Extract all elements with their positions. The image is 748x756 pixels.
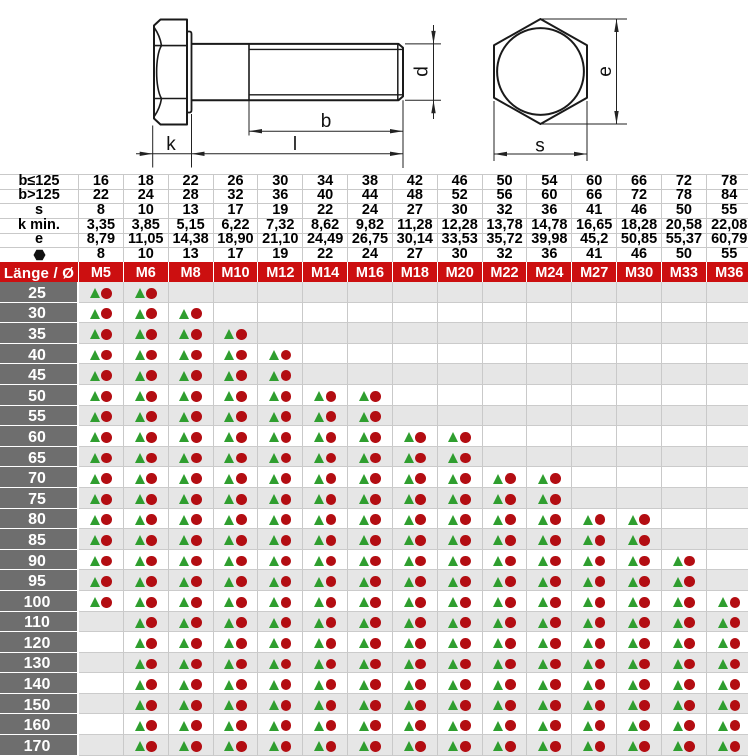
svg-text:e: e bbox=[595, 66, 616, 77]
svg-text:l: l bbox=[293, 134, 297, 155]
svg-text:d: d bbox=[412, 66, 433, 77]
svg-text:b: b bbox=[321, 111, 332, 132]
svg-text:k: k bbox=[166, 134, 176, 155]
svg-text:s: s bbox=[535, 136, 545, 157]
